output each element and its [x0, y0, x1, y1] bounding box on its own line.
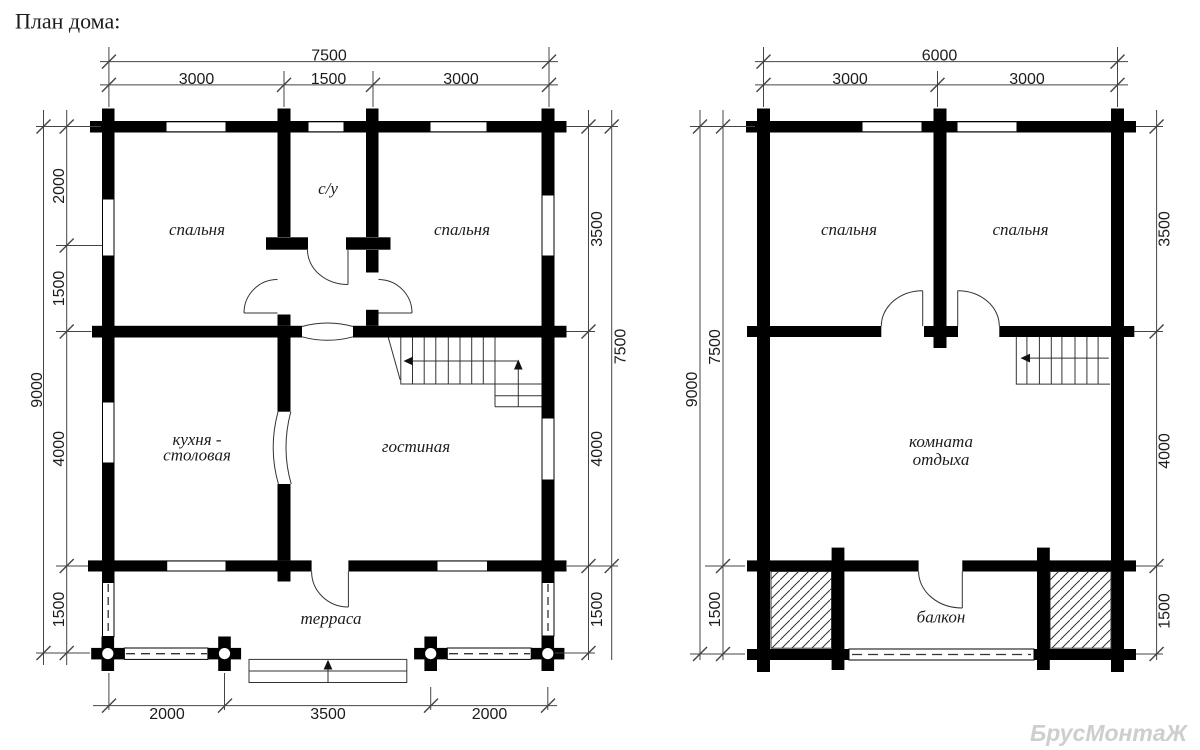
svg-text:терраса: терраса	[301, 609, 362, 628]
svg-text:спальня: спальня	[434, 220, 490, 239]
svg-text:1500: 1500	[589, 592, 606, 628]
svg-text:3000: 3000	[832, 71, 868, 88]
svg-text:отдыха: отдыха	[913, 450, 970, 469]
svg-text:гостиная: гостиная	[382, 437, 450, 456]
svg-text:7500: 7500	[707, 329, 724, 365]
svg-text:3500: 3500	[310, 706, 346, 723]
svg-text:2000: 2000	[149, 706, 185, 723]
svg-text:спальня: спальня	[169, 220, 225, 239]
svg-text:3500: 3500	[1157, 211, 1174, 247]
svg-text:4000: 4000	[51, 431, 68, 467]
svg-text:7500: 7500	[311, 48, 347, 65]
svg-text:1500: 1500	[707, 592, 724, 628]
svg-text:3000: 3000	[443, 71, 479, 88]
svg-text:2000: 2000	[51, 168, 68, 204]
svg-text:4000: 4000	[589, 431, 606, 467]
svg-text:7500: 7500	[613, 329, 630, 365]
svg-text:6000: 6000	[922, 48, 958, 65]
svg-text:4000: 4000	[1157, 433, 1174, 469]
svg-text:1500: 1500	[311, 71, 347, 88]
svg-text:План дома:: План дома:	[15, 9, 120, 34]
svg-text:1500: 1500	[1157, 593, 1174, 629]
svg-text:БрусМонтаЖ: БрусМонтаЖ	[1030, 720, 1189, 746]
svg-text:спальня: спальня	[992, 220, 1048, 239]
svg-text:с/у: с/у	[318, 179, 338, 198]
svg-text:3000: 3000	[1009, 71, 1045, 88]
svg-text:столовая: столовая	[163, 446, 231, 465]
svg-text:9000: 9000	[29, 372, 46, 408]
svg-text:9000: 9000	[684, 372, 701, 408]
svg-text:3000: 3000	[179, 71, 215, 88]
svg-text:3500: 3500	[589, 211, 606, 247]
svg-text:спальня: спальня	[821, 220, 877, 239]
svg-text:2000: 2000	[472, 706, 508, 723]
svg-text:балкон: балкон	[917, 608, 966, 627]
svg-text:комната: комната	[909, 432, 973, 451]
svg-text:1500: 1500	[51, 592, 68, 628]
svg-text:1500: 1500	[51, 271, 68, 307]
